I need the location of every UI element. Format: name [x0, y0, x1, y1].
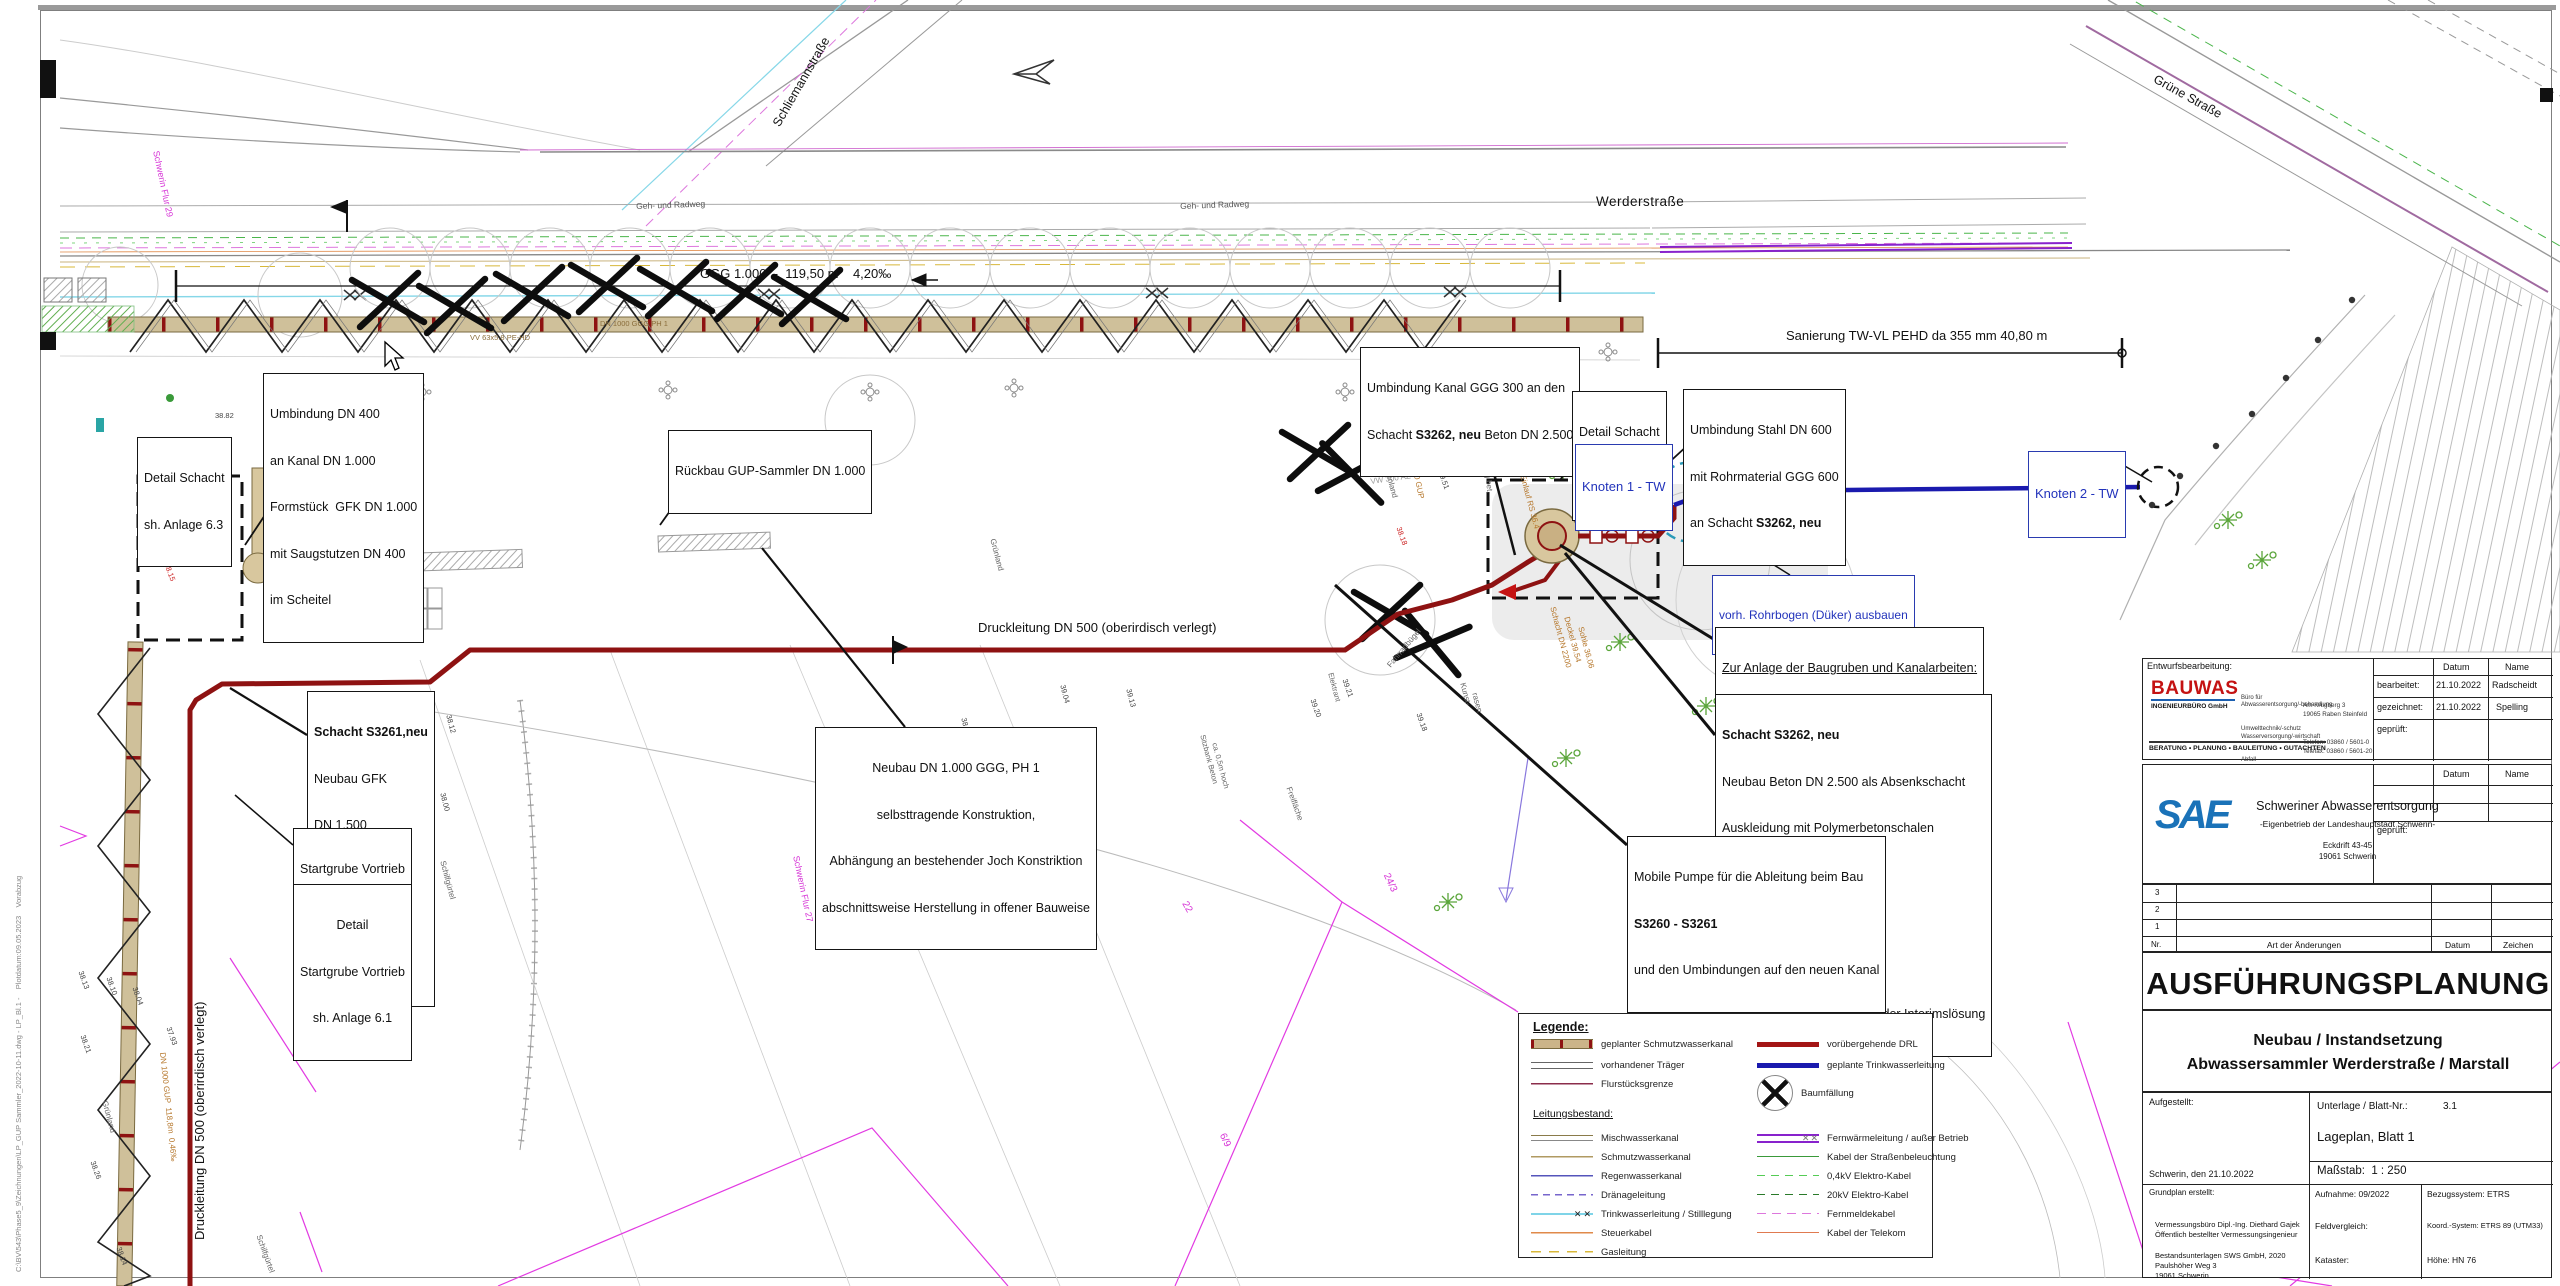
legend-item: Regenwasserkanal — [1531, 1170, 1682, 1182]
note-line: Neubau DN 1.000 GGG, PH 1 — [822, 761, 1090, 777]
legend-label: Flurstücksgrenze — [1601, 1079, 1673, 1090]
legend-right-column: vorübergehende DRLgeplante Trinkwasserle… — [1757, 1014, 1933, 1259]
legend-item: ✕✕Fernwärmeleitung / außer Betrieb — [1757, 1132, 1969, 1144]
grundplan-lines: Vermessungsbüro Dipl.-Ing. Diethard Gaje… — [2155, 1200, 2300, 1286]
legend-label: 20kV Elektro-Kabel — [1827, 1190, 1908, 1201]
north-symbol — [1014, 60, 1054, 84]
note-line: Startgrube Vortrieb — [300, 862, 405, 878]
gezeichnet-name: Spelling — [2496, 702, 2528, 713]
grundplan-label: Grundplan erstellt: — [2149, 1188, 2214, 1198]
sw-regen-swatch — [1531, 1172, 1593, 1180]
subtitle-2: Abwassersammler Werderstraße / Marstall — [2143, 1055, 2553, 1074]
hoehe-label: Höhe: HN 76 — [2427, 1255, 2476, 1265]
legend-label: vorübergehende DRL — [1827, 1039, 1918, 1050]
legend-item: Fernmeldekabel — [1757, 1208, 1895, 1220]
sw-strbel-swatch — [1757, 1153, 1819, 1161]
legend-label: Schmutzwasserkanal — [1601, 1152, 1691, 1163]
note-neubau-dn1000: Neubau DN 1.000 GGG, PH 1 selbsttragende… — [815, 727, 1097, 950]
sw-schmutz-swatch — [1531, 1153, 1593, 1161]
legend-label: 0,4kV Elektro-Kabel — [1827, 1171, 1911, 1182]
entwurf-label: Entwurfsbearbeitung: — [2147, 661, 2232, 672]
col-datum: Datum — [2443, 769, 2470, 780]
legend-label: Regenwasserkanal — [1601, 1171, 1682, 1182]
sw-04kv-swatch — [1757, 1172, 1819, 1180]
bearbeitet-datum: 21.10.2022 — [2436, 680, 2481, 691]
legend-item: Steuerkabel — [1531, 1227, 1652, 1239]
note-line: Zur Anlage der Baugruben und Kanalarbeit… — [1722, 661, 1977, 677]
legend-label: geplanter Schmutzwasserkanal — [1601, 1039, 1733, 1050]
note-line: Abhängung an bestehender Joch Konstrikti… — [822, 854, 1090, 870]
legend-item: ✕✕Trinkwasserleitung / Stilllegung — [1531, 1208, 1732, 1220]
titleblock-main-title: AUSFÜHRUNGSPLANUNG — [2142, 952, 2552, 1010]
existing-water-line — [60, 293, 1655, 297]
sw-20kv-swatch — [1757, 1191, 1819, 1199]
bezugssystem-label: Bezugssystem: ETRS — [2427, 1189, 2510, 1199]
note-line: vorh. Rohrbogen (Düker) ausbauen — [1719, 608, 1908, 623]
note-line: Knoten 1 - TW — [1582, 479, 1666, 495]
sw-fmk-swatch — [1757, 1210, 1819, 1218]
legend-item: geplante Trinkwasserleitung — [1757, 1059, 1945, 1071]
plot-stamp: C:\BV\543\Phase5_9\Zeichnungen\LP_GUP Sa… — [14, 876, 23, 1272]
unterlage-nr: 3.1 — [2443, 1101, 2457, 1113]
col-name: Name — [2505, 769, 2529, 780]
legend-label: Trinkwasserleitung / Stilllegung — [1601, 1209, 1732, 1220]
legend-label: Fernmeldekabel — [1827, 1209, 1895, 1220]
titleblock-entwurf: Entwurfsbearbeitung: BAUWAS INGENIEURBÜR… — [2142, 658, 2552, 760]
row-geprueft: geprüft: — [2377, 724, 2408, 735]
rev-datum-label: Datum — [2445, 940, 2470, 950]
sw-misch-swatch — [1531, 1135, 1593, 1141]
legend-item: Flurstücksgrenze — [1531, 1078, 1673, 1090]
ort-datum: Schwerin, den 21.10.2022 — [2149, 1169, 2254, 1180]
map-micro-label: Geh- und Radweg — [636, 200, 705, 211]
note-line: Schacht S3262, neu Beton DN 2.500 — [1367, 428, 1573, 444]
gezeichnet-datum: 21.10.2022 — [2436, 702, 2481, 713]
unterlage-label: Unterlage / Blatt-Nr.: — [2317, 1101, 2408, 1113]
legend-item: geplanter Schmutzwasserkanal — [1531, 1038, 1733, 1050]
note-line: Startgrube Vortrieb — [300, 965, 405, 981]
legend-item: Kabel der Telekom — [1757, 1227, 1906, 1239]
sw-drl-swatch — [1757, 1042, 1819, 1047]
knoten2-circle — [2138, 467, 2178, 507]
sw-twstill-swatch: ✕✕ — [1531, 1210, 1593, 1218]
legend-label: Mischwasserkanal — [1601, 1133, 1679, 1144]
street-lines-topleft — [60, 0, 962, 166]
legend-item: Gasleitung — [1531, 1246, 1646, 1258]
legend-label: geplante Trinkwasserleitung — [1827, 1060, 1945, 1071]
legend-item: Kabel der Straßenbeleuchtung — [1757, 1151, 1956, 1163]
note-line: Neubau Be­ton DN 2.500 als Absenkschacht — [1722, 775, 1985, 791]
note-line: Detail Schacht — [1579, 425, 1660, 441]
note-knoten1: Knoten 1 - TW — [1575, 444, 1673, 531]
rev-1: 1 — [2155, 922, 2159, 932]
bauwas-logo: BAUWAS — [2151, 679, 2238, 698]
sw-twneu-swatch — [1757, 1063, 1819, 1068]
sw-baum-swatch — [1757, 1075, 1793, 1111]
subtitle-1: Neubau / Instandsetzung — [2143, 1031, 2553, 1050]
bestand-label: Bestandsunterlagen SWS GmbH, 2020 — [2155, 1251, 2286, 1260]
note-line: abschnittsweise Herstellung in offener B… — [822, 901, 1090, 917]
note-line: Mobile Pumpe für die Ableitung beim Bau — [1634, 870, 1879, 886]
note-title: Schacht S3262, neu — [1722, 728, 1985, 744]
rev-3: 3 — [2155, 888, 2159, 898]
mouse-cursor — [385, 342, 403, 370]
note-knoten2: Knoten 2 - TW — [2028, 451, 2126, 538]
note-line: mit Rohrmaterial GGG 600 — [1690, 470, 1839, 486]
label-druckleitung-v: Druckleitung DN 500 (oberirdisch verlegt… — [192, 1002, 207, 1240]
rev-nr-label: Nr. — [2151, 940, 2161, 950]
note-line: Detail Schacht — [144, 471, 225, 487]
sw-draen-swatch — [1531, 1191, 1593, 1199]
label-druckleitung-h: Druckleitung DN 500 (oberirdisch verlegt… — [978, 620, 1216, 635]
rev-2: 2 — [2155, 905, 2159, 915]
note-line: Knoten 2 - TW — [2035, 486, 2119, 502]
map-micro-label: 38.82 — [215, 412, 234, 420]
note-line: selbsttragende Konstruktion, — [822, 808, 1090, 824]
bauwas-logo-rule — [2151, 699, 2235, 701]
legend: Legende: Leitungsbestand: geplanter Schm… — [1518, 1013, 1933, 1258]
row-gezeichnet: gezeichnet: — [2377, 702, 2423, 713]
map-micro-label: DN 1000 GGG PH 1 — [600, 320, 668, 328]
col-datum: Datum — [2443, 662, 2470, 673]
note-line: mit Saugstutzen DN 400 — [270, 547, 417, 563]
main-title: AUSFÜHRUNGSPLANUNG — [2143, 965, 2553, 1002]
note-rueckbau: Rückbau GUP-Sammler DN 1.000 — [668, 430, 872, 514]
titleblock-lower: Aufgestellt: Schwerin, den 21.10.2022 Un… — [2142, 1092, 2552, 1278]
legend-label: Dränageleitung — [1601, 1190, 1665, 1201]
map-micro-label: VV 63x5.8 PE-HD — [470, 334, 530, 342]
note-line: sh. Anlage 6.1 — [300, 1011, 405, 1027]
feldvergleich-label: Feldvergleich: — [2315, 1221, 2368, 1231]
lageplan-label: Lageplan, Blatt 1 — [2317, 1129, 2415, 1145]
legend-label: Kabel der Straßenbeleuchtung — [1827, 1152, 1956, 1163]
legend-left-column: geplanter Schmutzwasserkanalvorhandener … — [1531, 1014, 1743, 1259]
legend-item: Baumfällung — [1757, 1074, 1854, 1112]
note-line: S3260 - S3261 — [1634, 917, 1879, 933]
plan-sheet: Werderstraße Schliemannstraße Grüne Stra… — [0, 0, 2560, 1286]
note-umbindung-stahl: Umbindung Stahl DN 600 mit Rohrmaterial … — [1683, 389, 1846, 566]
note-line: Umbindung Kanal GGG 300 an den — [1367, 381, 1573, 397]
legend-item: vorhandener Träger — [1531, 1059, 1684, 1071]
sw-telekom-swatch — [1757, 1229, 1819, 1237]
note-umbindung-ggg300: Umbindung Kanal GGG 300 an den Schacht S… — [1360, 347, 1580, 477]
note-line: und den Umbindungen auf den neuen Kanal — [1634, 963, 1879, 979]
koordsystem-label: Koord.-System: ETRS 89 (UTM33) — [2427, 1221, 2543, 1230]
massstab: Maßstab: 1 : 250 — [2317, 1165, 2407, 1179]
note-line: Auskleidung mit Polymerbetonschalen — [1722, 821, 1985, 837]
aufnahme-label: Aufnahme: 09/2022 — [2315, 1189, 2389, 1199]
note-line: Rückbau GUP-Sammler DN 1.000 — [675, 464, 865, 480]
rev-zeichen-label: Zeichen — [2503, 940, 2533, 950]
legend-item: 0,4kV Elektro-Kabel — [1757, 1170, 1911, 1182]
kataster-label: Kataster: — [2315, 1255, 2349, 1265]
aufgestellt-label: Aufgestellt: — [2149, 1097, 2194, 1108]
legend-label: Steuerkabel — [1601, 1228, 1652, 1239]
note-umbindung-dn400: Umbindung DN 400 an Kanal DN 1.000 Forms… — [263, 373, 424, 643]
legend-label: Fernwärmeleitung / außer Betrieb — [1827, 1133, 1969, 1144]
legend-item: vorübergehende DRL — [1757, 1038, 1918, 1050]
legend-label: vorhandener Träger — [1601, 1060, 1684, 1071]
gruene-strasse-band — [2070, 0, 2560, 306]
legend-label: Baumfällung — [1801, 1088, 1854, 1099]
col-name: Name — [2505, 662, 2529, 673]
sae-addr2: 19061 Schwerin — [2255, 852, 2440, 862]
note-mobile-pumpe: Mobile Pumpe für die Ableitung beim Bau … — [1627, 836, 1886, 1013]
legend-item: Mischwasserkanal — [1531, 1132, 1679, 1144]
sw-gas-swatch — [1531, 1248, 1593, 1256]
dim-label-ggg: GGG 1.000 - 119,50 m 4,20‰ — [700, 266, 891, 281]
sw-traeger-swatch — [1531, 1062, 1593, 1069]
row-bearbeitet: bearbeitet: — [2377, 680, 2420, 691]
bearbeitet-name: Radscheidt — [2492, 680, 2537, 691]
sw-fernw-swatch: ✕✕ — [1757, 1134, 1819, 1143]
map-micro-label: Geh- und Radweg — [1180, 200, 1249, 211]
legend-label: Gasleitung — [1601, 1247, 1646, 1258]
row-geprueft: geprüft: — [2377, 825, 2408, 836]
street-label-werder: Werderstraße — [1596, 194, 1684, 209]
sw-flur-swatch — [1531, 1080, 1593, 1088]
titleblock-revisions: 3 2 1 Nr. Art der Änderungen Datum Zeich… — [2142, 884, 2552, 952]
sae-org: Schweriner Abwasserentsorgung — [2255, 799, 2440, 814]
legend-label: Kabel der Telekom — [1827, 1228, 1906, 1239]
note-line: im Scheitel — [270, 593, 417, 609]
sw-geplant-swatch — [1531, 1039, 1593, 1049]
dim-label-sanierung: Sanierung TW-VL PEHD da 355 mm 40,80 m — [1786, 328, 2047, 343]
rev-art-label: Art der Änderungen — [2177, 940, 2431, 950]
note-line: Formstück GFK DN 1.000 — [270, 500, 417, 516]
hatched-area — [2292, 247, 2560, 652]
note-title: Schacht S3261,neu — [314, 725, 428, 741]
note-line: Neubau GFK — [314, 772, 428, 788]
note-line: an Schacht S3262, neu — [1690, 516, 1839, 532]
legend-item: Dränageleitung — [1531, 1189, 1665, 1201]
titleblock-sae: SAE Schweriner Abwasserentsorgung -Eigen… — [2142, 764, 2552, 884]
note-line: an Kanal DN 1.000 — [270, 454, 417, 470]
note-line: sh. Anlage 6.3 — [144, 518, 225, 534]
sae-addr1: Eckdrift 43-45 — [2255, 841, 2440, 851]
legend-item: Schmutzwasserkanal — [1531, 1151, 1691, 1163]
note-detail-schacht-63: Detail Schacht sh. Anlage 6.3 — [137, 437, 232, 567]
note-line: Umbindung DN 400 — [270, 407, 417, 423]
bauwas-sub: INGENIEURBÜRO GmbH — [2151, 703, 2228, 711]
note-detail-startgrube: Detail Startgrube Vortrieb sh. Anlage 6.… — [293, 884, 412, 1061]
note-line: Umbindung Stahl DN 600 — [1690, 423, 1839, 439]
titleblock-subtitle: Neubau / Instandsetzung Abwassersammler … — [2142, 1010, 2552, 1092]
sw-steuer-swatch — [1531, 1229, 1593, 1237]
legend-item: 20kV Elektro-Kabel — [1757, 1189, 1908, 1201]
sae-logo: SAE — [2155, 795, 2228, 835]
note-line: Detail — [300, 918, 405, 934]
